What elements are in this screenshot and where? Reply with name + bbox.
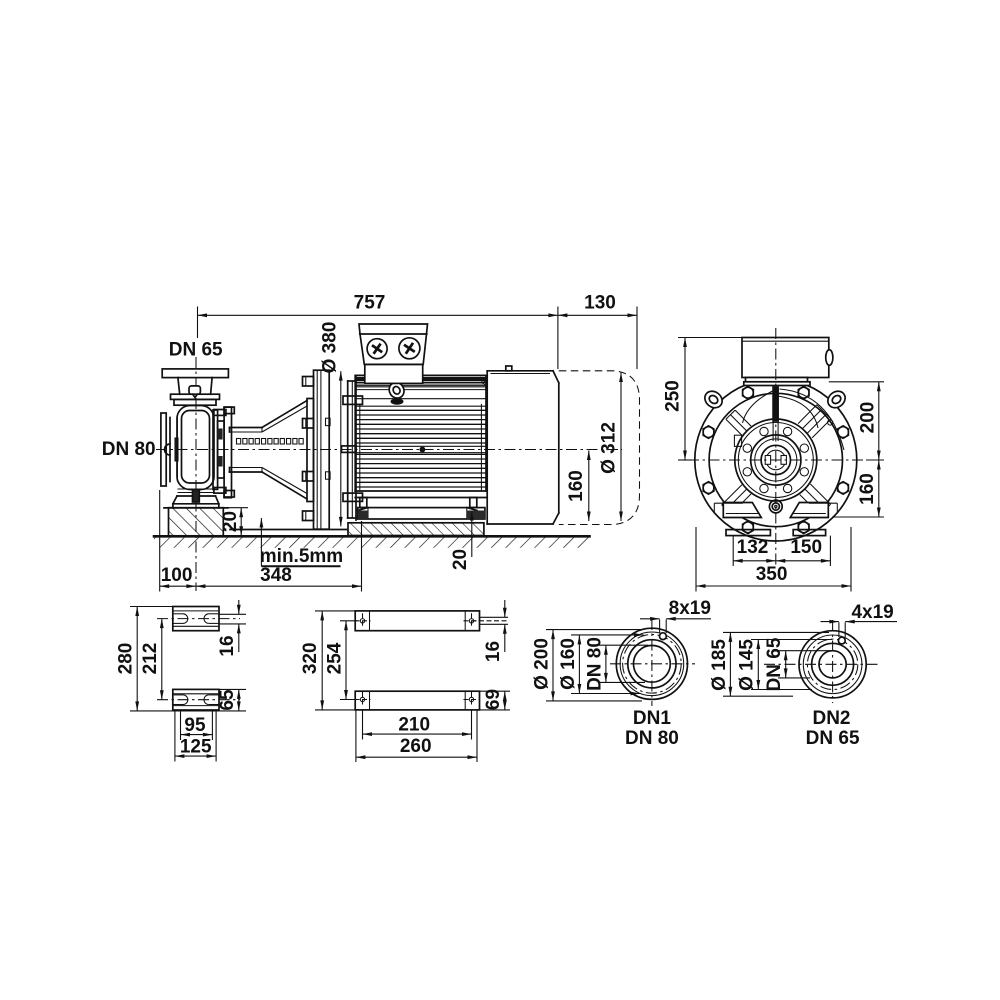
svg-text:DN 65: DN 65 xyxy=(169,340,223,361)
svg-text:254: 254 xyxy=(324,642,345,674)
svg-text:DN 80: DN 80 xyxy=(584,637,605,691)
svg-text:320: 320 xyxy=(300,642,321,674)
svg-text:130: 130 xyxy=(584,293,616,314)
svg-text:69: 69 xyxy=(483,689,504,710)
svg-text:210: 210 xyxy=(398,715,430,736)
svg-text:20: 20 xyxy=(220,511,241,532)
svg-text:Ø 200: Ø 200 xyxy=(531,638,552,690)
svg-text:DN 65: DN 65 xyxy=(806,728,860,749)
svg-text:150: 150 xyxy=(790,537,822,558)
svg-text:250: 250 xyxy=(663,380,684,412)
svg-text:Ø 380: Ø 380 xyxy=(319,322,340,374)
svg-text:100: 100 xyxy=(161,565,193,586)
svg-text:200: 200 xyxy=(857,402,878,434)
svg-text:DN1: DN1 xyxy=(633,708,671,729)
svg-text:Ø 185: Ø 185 xyxy=(709,639,730,691)
svg-text:DN 80: DN 80 xyxy=(102,439,156,460)
svg-text:16: 16 xyxy=(483,641,504,662)
svg-text:260: 260 xyxy=(400,736,432,757)
svg-text:160: 160 xyxy=(857,473,878,505)
svg-text:Ø 160: Ø 160 xyxy=(558,638,579,690)
svg-text:160: 160 xyxy=(566,470,587,502)
svg-text:350: 350 xyxy=(756,564,788,585)
svg-text:65: 65 xyxy=(217,689,238,711)
svg-text:DN 80: DN 80 xyxy=(625,728,679,749)
svg-text:132: 132 xyxy=(737,537,769,558)
svg-text:20: 20 xyxy=(450,549,471,570)
svg-text:212: 212 xyxy=(140,643,161,675)
svg-text:Ø 312: Ø 312 xyxy=(599,422,620,474)
svg-text:4x19: 4x19 xyxy=(851,602,893,623)
svg-text:DN 65: DN 65 xyxy=(764,637,785,691)
svg-text:757: 757 xyxy=(354,293,386,314)
svg-text:280: 280 xyxy=(116,643,137,675)
svg-text:16: 16 xyxy=(217,635,238,656)
svg-text:8x19: 8x19 xyxy=(669,598,711,619)
svg-text:95: 95 xyxy=(184,715,206,736)
svg-text:348: 348 xyxy=(260,565,292,586)
svg-text:125: 125 xyxy=(180,736,212,757)
svg-text:Ø 145: Ø 145 xyxy=(737,639,758,691)
svg-text:DN2: DN2 xyxy=(812,708,850,729)
